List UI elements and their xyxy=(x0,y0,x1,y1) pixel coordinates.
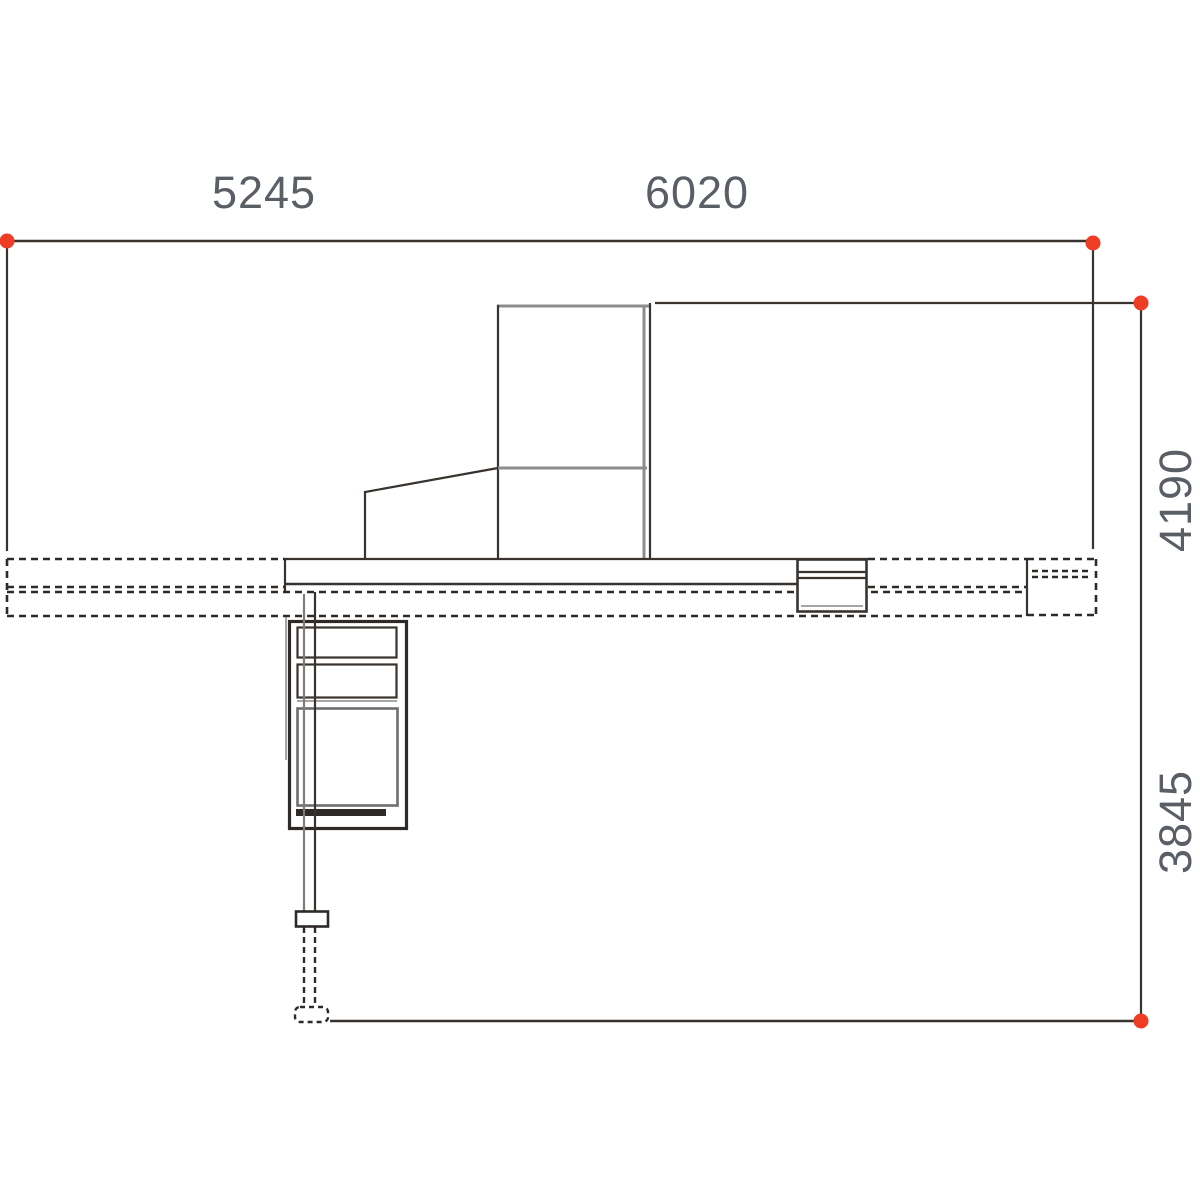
machine-outline xyxy=(7,303,1096,1022)
carriage-box xyxy=(798,560,867,612)
dimension-annotations xyxy=(0,234,1149,1029)
technical-drawing: 5245 6020 4190 3845 xyxy=(0,0,1200,1200)
hood-outline xyxy=(365,468,498,558)
leg-clamp xyxy=(296,912,328,927)
dim-marker-top-right xyxy=(1086,236,1101,251)
control-box-base-bar xyxy=(296,809,386,816)
dim-label-height-upper: 4190 xyxy=(1150,448,1200,552)
control-box xyxy=(290,622,407,829)
dim-label-width-left: 5245 xyxy=(212,167,316,219)
leg-foot-dashed xyxy=(295,1007,328,1022)
dim-marker-right-upper xyxy=(1134,296,1149,311)
dim-marker-top-left xyxy=(0,234,15,249)
dim-label-width-right: 6020 xyxy=(645,167,749,219)
dim-marker-bottom-right xyxy=(1134,1014,1149,1029)
dim-label-height-lower: 3845 xyxy=(1150,770,1200,874)
drawing-canvas xyxy=(0,0,1200,1200)
